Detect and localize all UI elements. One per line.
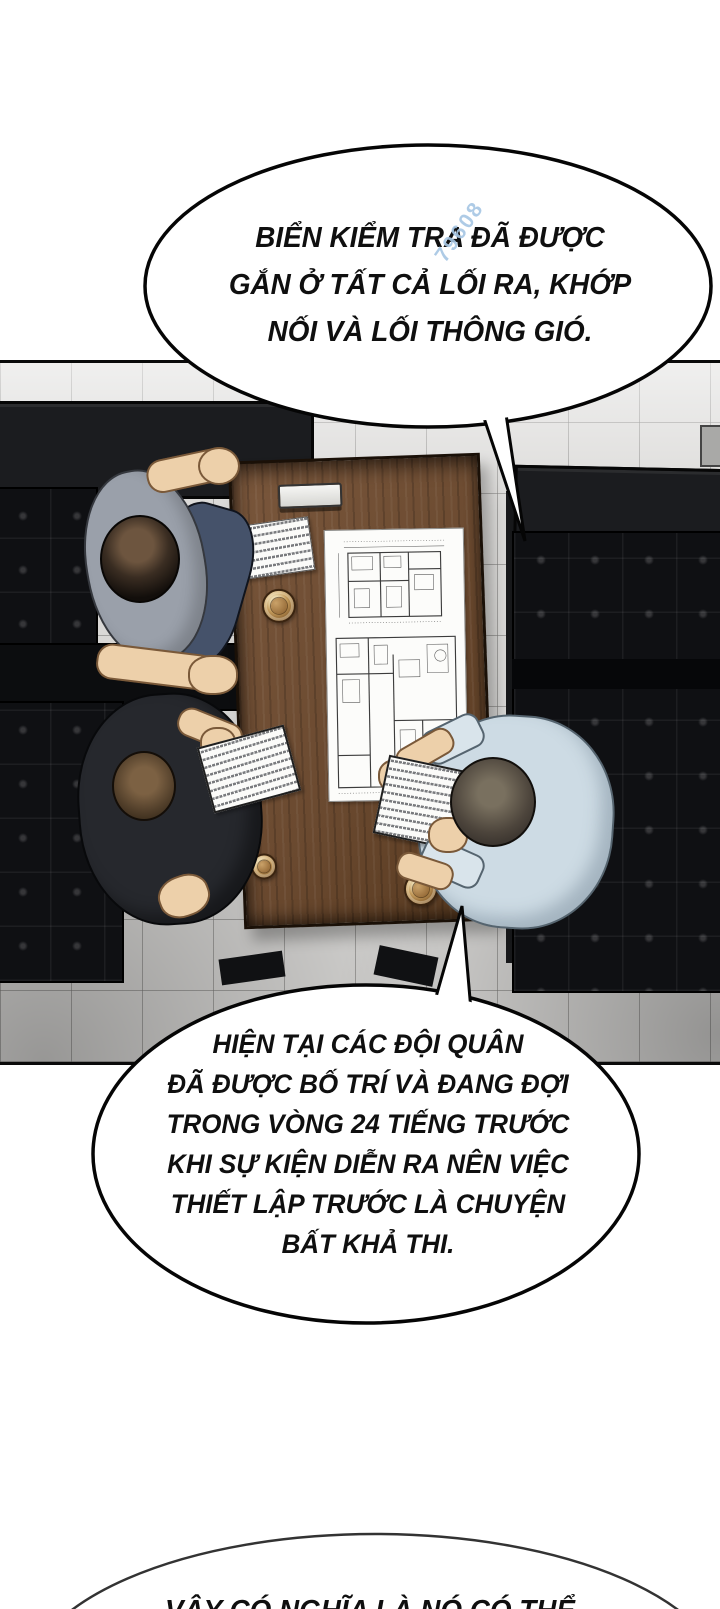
speech-bubble-middle-text: HIỆN TẠI CÁC ĐỘI QUÂN ĐÃ ĐƯỢC BỐ TRÍ VÀ … bbox=[103, 1024, 633, 1264]
speech-line: HIỆN TẠI CÁC ĐỘI QUÂN bbox=[103, 1024, 633, 1064]
speech-line: NỐI VÀ LỐI THÔNG GIÓ. bbox=[152, 309, 709, 356]
speech-line: BẤT KHẢ THI. bbox=[103, 1224, 633, 1264]
speech-line: THIẾT LẬP TRƯỚC LÀ CHUYỆN bbox=[103, 1184, 633, 1224]
speech-line: TRONG VÒNG 24 TIẾNG TRƯỚC bbox=[103, 1104, 633, 1144]
comic-page: BIỂN KIỂM TRA ĐÃ ĐƯỢC GẮN Ở TẤT CẢ LỐI R… bbox=[0, 0, 720, 1609]
speech-line: ĐÃ ĐƯỢC BỐ TRÍ VÀ ĐANG ĐỢI bbox=[103, 1064, 633, 1104]
speech-line: VẬY CÓ NGHĨA LÀ NÓ CÓ THỂ bbox=[111, 1591, 629, 1609]
speech-line: KHI SỰ KIỆN DIỄN RA NÊN VIỆC bbox=[103, 1144, 633, 1184]
speech-bubble-bottom-text: VẬY CÓ NGHĨA LÀ NÓ CÓ THỂ bbox=[111, 1591, 629, 1609]
speech-bubble-top-text: BIỂN KIỂM TRA ĐÃ ĐƯỢC GẮN Ở TẤT CẢ LỐI R… bbox=[152, 215, 709, 356]
